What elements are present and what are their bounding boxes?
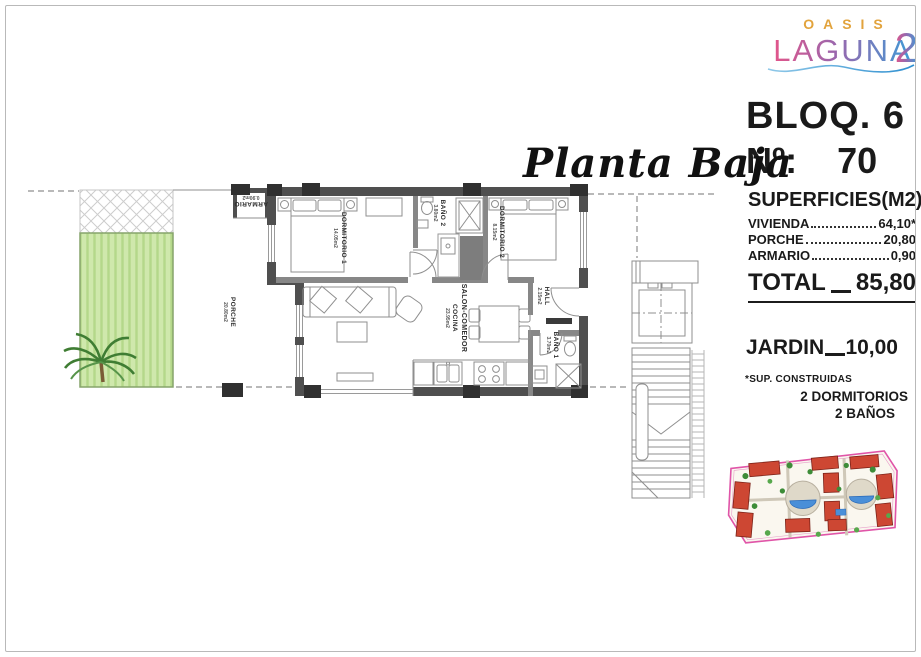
svg-text:0.90m2: 0.90m2 (242, 194, 259, 200)
svg-text:20.80m2: 20.80m2 (222, 302, 228, 322)
dotted-leader (806, 242, 882, 244)
garden-area-row: JARDIN 10,00 (746, 336, 898, 360)
svg-text:3.70m2: 3.70m2 (545, 337, 551, 354)
garden (64, 233, 173, 387)
room-label-dormitorio1: DORMITORIO 1 (340, 212, 347, 264)
block-number: BLOQ. 6 (746, 95, 905, 138)
svg-text:14.05m2: 14.05m2 (332, 228, 338, 248)
total-row: TOTAL 85,80 (748, 269, 916, 303)
garden-separator (825, 353, 845, 356)
living-room-furniture (303, 286, 530, 381)
area-row-armario: ARMARIO 0,90 (748, 248, 916, 264)
bathroom2-fixtures (417, 197, 483, 233)
svg-text:8.15m2: 8.15m2 (491, 224, 497, 241)
room-label-bano2: BAÑO 2 (439, 200, 448, 227)
site-pool-small (836, 509, 846, 515)
dotted-leader (812, 258, 889, 260)
features-list: 2 DORMITORIOS 2 BAÑOS (748, 388, 908, 422)
garden-label: JARDIN (746, 336, 824, 360)
svg-text:23.95m2: 23.95m2 (444, 308, 450, 328)
site-plaza-right (846, 479, 877, 510)
utility-closet (438, 234, 459, 277)
svg-text:3.80m2: 3.80m2 (432, 205, 438, 222)
room-label-salon: SALON-COMEDOR (460, 284, 467, 353)
site-plaza-left (785, 481, 821, 517)
total-value: 85,80 (856, 269, 916, 297)
garden-value: 10,00 (845, 336, 898, 360)
page: DORMITORIO 1 14.05m2 BAÑO 2 3.80m2 DORMI… (0, 0, 921, 657)
room-label-porche: PORCHE (229, 297, 236, 327)
total-separator (831, 290, 851, 293)
feature-bathrooms: 2 BAÑOS (748, 405, 908, 422)
room-label-bano1: BAÑO 1 (552, 332, 561, 359)
areas-title: SUPERFICIES(M2) (748, 189, 916, 212)
site-plan-thumbnail (724, 448, 901, 548)
footnote: *SUP. CONSTRUIDAS (745, 374, 852, 385)
unit-number: 70 (837, 140, 877, 182)
svg-text:2.15m2: 2.15m2 (536, 288, 542, 305)
room-label-armario: ARMARIO (234, 200, 268, 207)
areas-table: SUPERFICIES(M2) VIVIENDA 64,10* PORCHE 2… (748, 189, 916, 303)
svg-text:COCINA: COCINA (451, 304, 458, 332)
feature-bedrooms: 2 DORMITORIOS (748, 388, 908, 405)
area-row-porche: PORCHE 20,80 (748, 232, 916, 248)
logo-wave-icon (766, 60, 916, 78)
dotted-leader (811, 226, 876, 228)
brand-logo: OASIS LAGUNA2 (770, 16, 916, 79)
hall-radiator (546, 318, 572, 324)
bedroom1-furniture (278, 198, 402, 272)
total-label: TOTAL (748, 269, 826, 297)
kitchen-counter (413, 360, 530, 387)
room-label-dormitorio2: DORMITORIO 2 (498, 206, 505, 258)
room-label-hall: HALL (543, 287, 550, 306)
stairs-elevator-core (632, 261, 704, 498)
area-row-vivienda: VIVIENDA 64,10* (748, 216, 916, 232)
plan-title: Planta Baja (523, 140, 793, 187)
hatched-area (80, 190, 173, 233)
